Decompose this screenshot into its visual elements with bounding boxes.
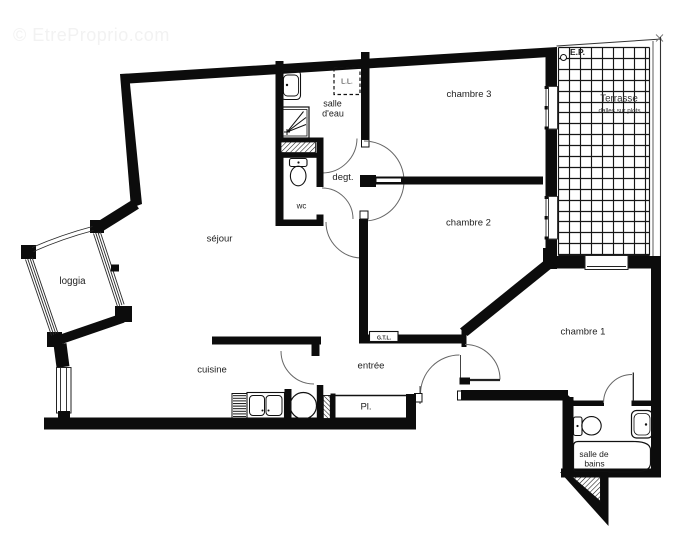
svg-text:chambre 1: chambre 1 xyxy=(561,327,606,338)
svg-text:séjour: séjour xyxy=(207,234,233,245)
svg-text:chambre 3: chambre 3 xyxy=(447,89,492,100)
svg-text:cuisine: cuisine xyxy=(197,365,227,376)
svg-text:dalles sur plots: dalles sur plots xyxy=(599,108,641,115)
svg-text:G.T.L.: G.T.L. xyxy=(377,336,392,342)
svg-text:© EtreProprio.com: © EtreProprio.com xyxy=(13,25,170,45)
svg-text:chambre 2: chambre 2 xyxy=(446,218,491,229)
svg-text:E.P.: E.P. xyxy=(570,47,585,57)
svg-text:L.L.: L.L. xyxy=(341,79,353,86)
svg-text:Pl.: Pl. xyxy=(360,402,371,413)
svg-text:entrée: entrée xyxy=(358,361,385,372)
svg-text:degt.: degt. xyxy=(332,172,353,183)
svg-text:salle de: salle de xyxy=(579,449,609,459)
svg-text:loggia: loggia xyxy=(59,276,86,287)
svg-text:d'eau: d'eau xyxy=(322,109,344,119)
svg-text:bains: bains xyxy=(584,459,604,469)
svg-text:wc: wc xyxy=(296,202,307,211)
svg-text:salle: salle xyxy=(323,99,342,109)
svg-text:Terrasse: Terrasse xyxy=(600,94,638,105)
